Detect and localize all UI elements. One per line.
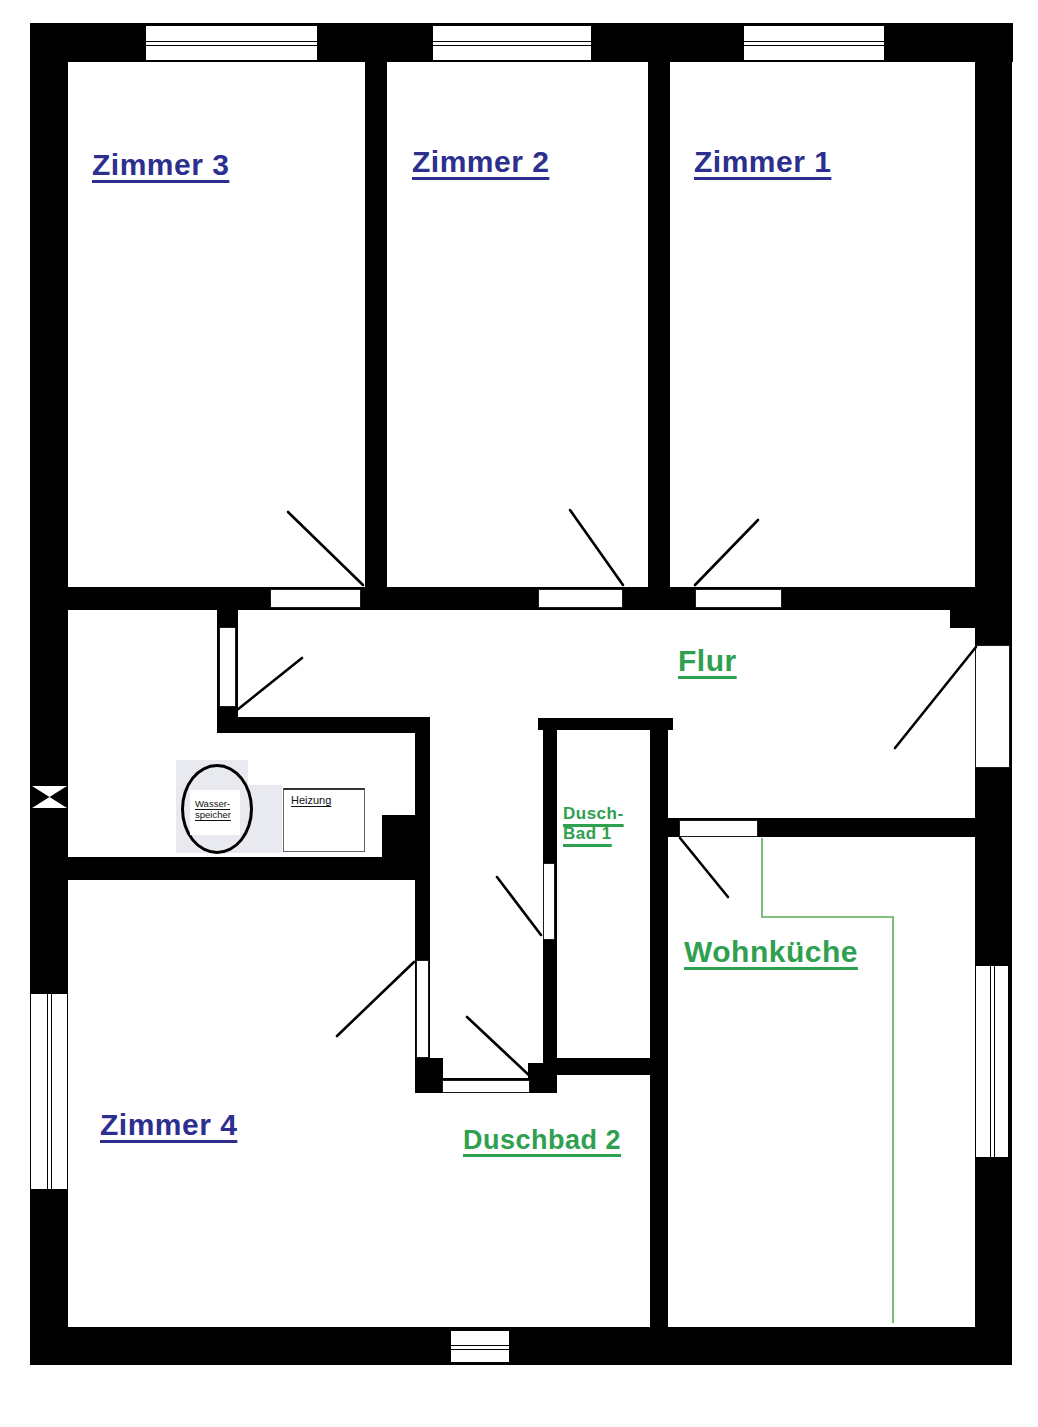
door-swing-line xyxy=(337,962,414,1036)
wall-segment xyxy=(950,610,975,628)
room-label-zimmer1: Zimmer 1 xyxy=(694,144,831,180)
door-swing-line xyxy=(895,647,976,748)
door-opening xyxy=(416,960,429,1058)
room-label-duschbad1: Dusch- Bad 1 xyxy=(563,804,624,845)
door-opening xyxy=(679,820,758,837)
window-symbol xyxy=(450,1330,510,1363)
room-label-zimmer4: Zimmer 4 xyxy=(100,1107,237,1143)
window-symbol xyxy=(975,965,1009,1158)
wall-segment xyxy=(382,815,430,857)
window-symbol xyxy=(743,25,885,61)
window-symbol xyxy=(30,993,68,1190)
window-symbol xyxy=(145,25,318,61)
door-opening xyxy=(270,589,361,608)
wall-segment xyxy=(217,717,430,733)
window-glazing-line xyxy=(744,41,884,46)
room-label-flur: Flur xyxy=(678,643,737,679)
door-swing-line xyxy=(288,512,363,585)
window-glazing-line xyxy=(451,1345,509,1350)
room-label-zimmer3: Zimmer 3 xyxy=(92,147,229,183)
door-opening xyxy=(219,627,236,707)
wall-segment xyxy=(650,718,668,1327)
door-swing-line xyxy=(467,1017,532,1078)
door-swing-line xyxy=(497,877,541,935)
equipment-shading xyxy=(248,785,282,853)
window-glazing-line xyxy=(433,41,591,46)
room-label-duschbad2: Duschbad 2 xyxy=(463,1124,621,1156)
wall-segment xyxy=(365,62,387,587)
wall-segment xyxy=(648,62,670,587)
door-swing-line xyxy=(570,510,623,585)
window-symbol xyxy=(432,25,592,61)
door-swing-line xyxy=(680,838,728,897)
room-label-zimmer2: Zimmer 2 xyxy=(412,144,549,180)
door-opening xyxy=(543,863,555,940)
wall-segment xyxy=(415,1058,443,1093)
room-label-wohnkueche: Wohnküche xyxy=(684,934,858,970)
door-opening xyxy=(442,1080,530,1093)
window-glazing-line xyxy=(990,966,995,1157)
door-opening xyxy=(538,589,623,608)
wall-segment xyxy=(68,857,430,880)
door-swing-line xyxy=(237,658,302,710)
plan-symbols-layer xyxy=(0,0,1038,1427)
floor-plan: Zimmer 3 Zimmer 2 Zimmer 1 Zimmer 4 Flur… xyxy=(0,0,1038,1427)
heater-label: Heizung xyxy=(291,794,331,807)
door-swing-line xyxy=(695,520,758,585)
wall-segment xyxy=(30,1327,1012,1365)
door-opening xyxy=(975,645,1010,768)
window-glazing-line xyxy=(146,41,317,46)
wall-segment xyxy=(543,1058,668,1075)
window-glazing-line xyxy=(47,994,52,1189)
water-tank-label: Wasser- speicher xyxy=(195,798,231,821)
wall-segment xyxy=(68,587,975,610)
kitchen-area-line xyxy=(762,838,893,1323)
door-opening xyxy=(695,589,782,608)
